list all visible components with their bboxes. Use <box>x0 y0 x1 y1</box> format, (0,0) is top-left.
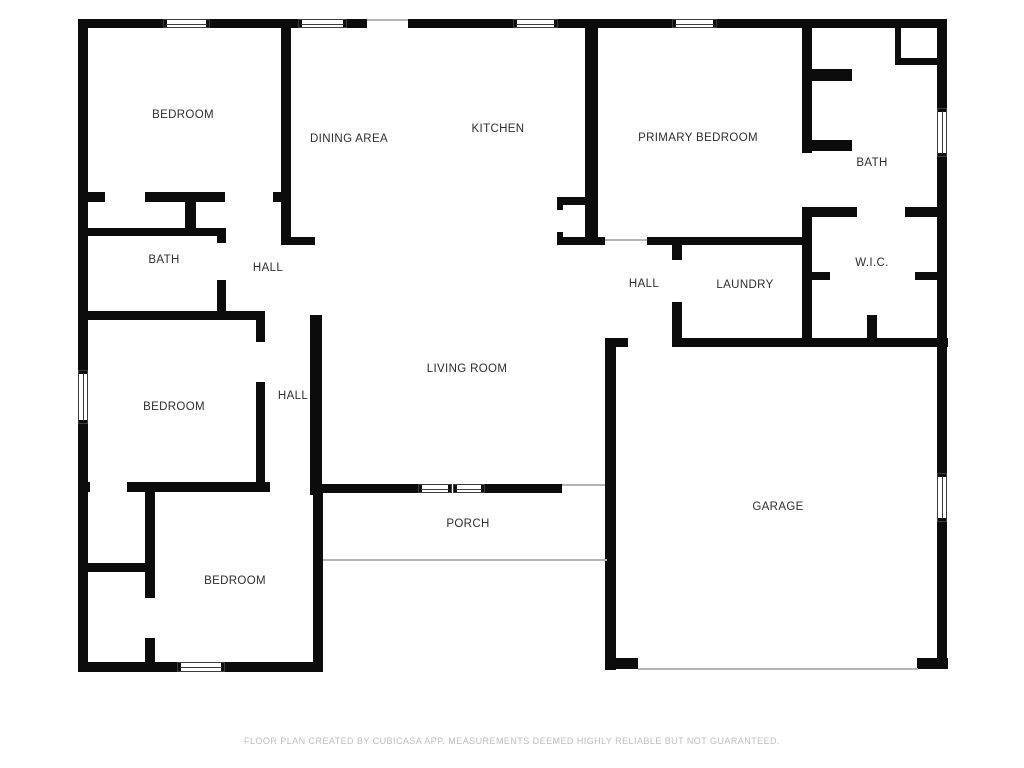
wall-segment <box>88 228 224 236</box>
wall-segment <box>895 58 937 65</box>
wall-segment <box>273 192 282 202</box>
wall-segment <box>408 19 513 28</box>
wall-segment <box>672 338 948 347</box>
window-icon <box>78 370 88 424</box>
window-icon <box>453 484 485 493</box>
wall-segment <box>145 638 155 662</box>
wall-segment <box>812 272 830 280</box>
wall-segment <box>145 490 155 598</box>
room-label-bath-left: BATH <box>148 254 179 266</box>
room-label-porch: PORCH <box>446 518 489 530</box>
window-icon <box>163 19 210 28</box>
floorplan-disclaimer: FLOOR PLAN CREATED BY CUBICASA APP. MEAS… <box>244 736 780 746</box>
wall-segment <box>485 484 562 493</box>
wall-segment <box>256 311 265 342</box>
wall-segment <box>256 382 265 487</box>
wall-segment <box>281 237 315 245</box>
wall-segment <box>937 19 947 108</box>
wall-segment <box>915 272 937 280</box>
window-icon <box>937 473 947 522</box>
wall-segment <box>867 315 877 338</box>
wall-segment <box>605 338 616 670</box>
room-label-bedroom-bottom: BEDROOM <box>204 575 266 587</box>
window-icon <box>418 484 452 493</box>
room-label-kitchen: KITCHEN <box>472 123 525 135</box>
wall-segment <box>802 19 812 153</box>
room-label-bath-right: BATH <box>856 157 887 169</box>
room-label-bedroom-middle-left: BEDROOM <box>143 401 205 413</box>
window-icon <box>177 662 225 672</box>
wall-segment <box>347 19 367 28</box>
wall-segment <box>281 19 291 245</box>
wall-segment <box>647 237 808 245</box>
wall-segment <box>585 19 598 237</box>
wall-segment <box>88 192 105 202</box>
wall-segment <box>558 19 672 28</box>
room-label-primary-bedroom: PRIMARY BEDROOM <box>638 132 758 144</box>
wall-segment <box>313 484 323 670</box>
window-icon <box>937 108 947 157</box>
room-label-hall-middle: HALL <box>278 390 308 402</box>
opening-line <box>323 559 607 561</box>
room-label-living-room: LIVING ROOM <box>427 363 508 375</box>
wall-segment <box>78 662 177 672</box>
wall-segment <box>937 522 947 668</box>
wall-segment <box>812 69 852 81</box>
room-label-bedroom-top-left: BEDROOM <box>152 109 214 121</box>
wall-segment <box>78 19 163 28</box>
wall-segment <box>185 192 196 228</box>
window-icon <box>298 19 347 28</box>
wall-segment <box>937 157 947 473</box>
wall-segment <box>557 237 605 245</box>
wall-segment <box>812 140 852 151</box>
room-label-hall-right: HALL <box>629 278 659 290</box>
opening-line <box>638 668 918 670</box>
wall-segment <box>557 197 563 210</box>
wall-segment <box>217 228 226 243</box>
wall-segment <box>672 245 682 260</box>
wall-segment <box>905 207 937 217</box>
wall-segment <box>917 658 948 669</box>
wall-segment <box>802 207 857 217</box>
wall-segment <box>78 424 88 672</box>
room-label-laundry: LAUNDRY <box>716 279 773 291</box>
room-label-dining-area: DINING AREA <box>310 133 388 145</box>
opening-line <box>562 484 605 486</box>
room-label-wic: W.I.C. <box>855 257 888 269</box>
room-label-garage: GARAGE <box>752 501 803 513</box>
wall-segment <box>310 484 418 493</box>
wall-segment <box>310 315 322 495</box>
wall-segment <box>895 28 901 58</box>
room-label-hall-upper-left: HALL <box>253 262 283 274</box>
opening-line <box>605 239 647 241</box>
wall-segment <box>802 208 812 347</box>
floor-plan-canvas: FLOOR PLAN CREATED BY CUBICASA APP. MEAS… <box>0 0 1024 768</box>
wall-segment <box>225 662 323 672</box>
window-icon <box>513 19 558 28</box>
wall-segment <box>78 19 88 370</box>
window-icon <box>672 19 717 28</box>
opening-line <box>367 19 408 21</box>
wall-segment <box>717 19 947 28</box>
wall-segment <box>88 311 265 320</box>
wall-segment <box>78 563 145 572</box>
wall-segment <box>616 338 628 347</box>
wall-segment <box>78 482 90 492</box>
